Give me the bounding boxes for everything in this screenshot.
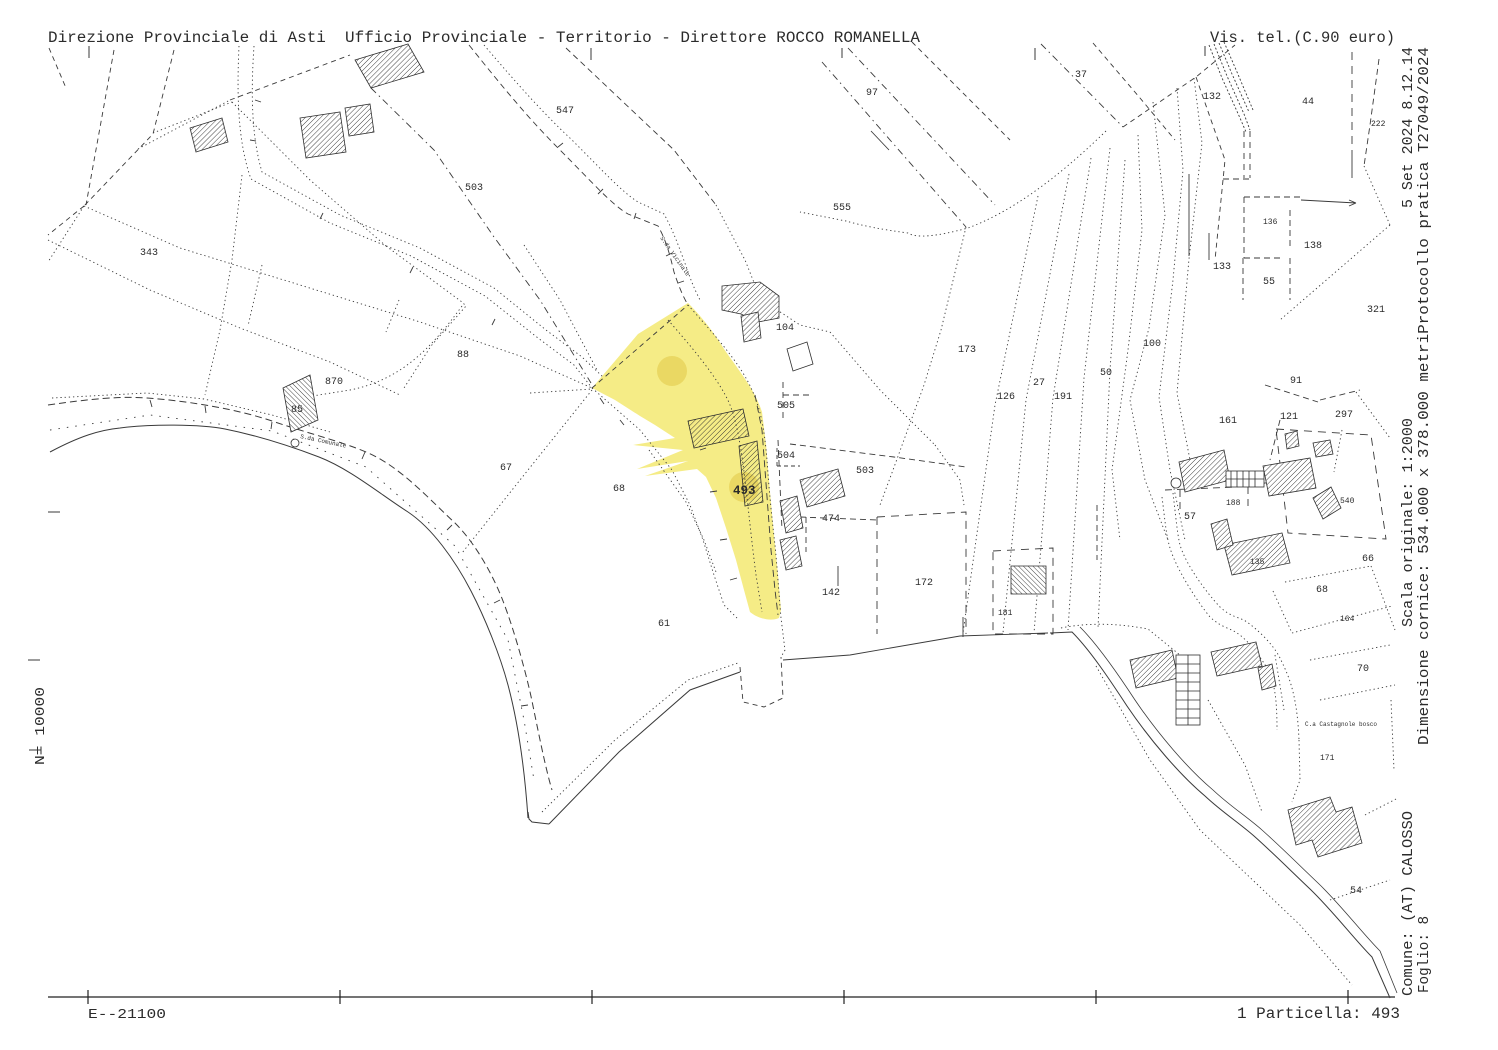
svg-text:91: 91 bbox=[1290, 376, 1302, 387]
svg-text:161: 161 bbox=[1219, 416, 1237, 427]
svg-text:171: 171 bbox=[1320, 754, 1335, 763]
svg-text:555: 555 bbox=[833, 203, 851, 214]
svg-text:C.a Castagnole bosco: C.a Castagnole bosco bbox=[1305, 721, 1377, 728]
svg-text:135: 135 bbox=[1250, 558, 1265, 567]
svg-text:133: 133 bbox=[1213, 262, 1231, 273]
svg-text:67: 67 bbox=[500, 463, 512, 474]
svg-text:Vis. tel.(C.90 euro): Vis. tel.(C.90 euro) bbox=[1210, 29, 1395, 47]
svg-text:173: 173 bbox=[958, 345, 976, 356]
svg-text:57: 57 bbox=[1184, 512, 1196, 523]
svg-text:505: 505 bbox=[777, 401, 795, 412]
svg-text:142: 142 bbox=[822, 588, 840, 599]
svg-text:540: 540 bbox=[1340, 497, 1355, 506]
svg-text:5 Set 2024 8.12.14: 5 Set 2024 8.12.14 bbox=[1401, 47, 1417, 208]
svg-text:97: 97 bbox=[866, 88, 878, 99]
svg-text:503: 503 bbox=[465, 183, 483, 194]
svg-text:191: 191 bbox=[1054, 392, 1072, 403]
svg-text:37: 37 bbox=[1075, 70, 1087, 81]
svg-text:188: 188 bbox=[1226, 499, 1241, 508]
svg-text:297: 297 bbox=[1335, 410, 1353, 421]
svg-text:547: 547 bbox=[556, 106, 574, 117]
svg-text:100: 100 bbox=[1143, 339, 1161, 350]
svg-text:Scala originale: 1:2000: Scala originale: 1:2000 bbox=[1401, 418, 1417, 627]
svg-text:Dimensione cornice: 534.000 x: Dimensione cornice: 534.000 x 378.000 me… bbox=[1417, 47, 1433, 745]
svg-text:70: 70 bbox=[1357, 664, 1369, 675]
svg-text:Foglio: 8: Foglio: 8 bbox=[1417, 916, 1433, 993]
svg-text:85: 85 bbox=[291, 405, 303, 416]
svg-text:474: 474 bbox=[822, 514, 840, 525]
svg-text:343: 343 bbox=[140, 248, 158, 259]
svg-text:321: 321 bbox=[1367, 305, 1385, 316]
svg-text:136: 136 bbox=[1263, 218, 1278, 227]
svg-text:Direzione Provinciale di Asti: Direzione Provinciale di Asti Ufficio Pr… bbox=[48, 29, 921, 47]
svg-text:88: 88 bbox=[457, 350, 469, 361]
svg-text:503: 503 bbox=[856, 466, 874, 477]
svg-text:44: 44 bbox=[1302, 97, 1314, 108]
svg-text:54: 54 bbox=[1350, 886, 1362, 897]
svg-text:870: 870 bbox=[325, 377, 343, 388]
svg-text:66: 66 bbox=[1362, 554, 1374, 565]
svg-text:27: 27 bbox=[1033, 378, 1045, 389]
svg-text:N= 10000: N= 10000 bbox=[33, 687, 49, 765]
svg-text:172: 172 bbox=[915, 578, 933, 589]
svg-text:504: 504 bbox=[777, 451, 795, 462]
svg-text:132: 132 bbox=[1203, 92, 1221, 103]
svg-text:181: 181 bbox=[998, 609, 1013, 618]
svg-text:138: 138 bbox=[1304, 241, 1322, 252]
svg-text:493: 493 bbox=[733, 484, 756, 498]
svg-text:50: 50 bbox=[1100, 368, 1112, 379]
svg-text:Comune: (AT) CALOSSO: Comune: (AT) CALOSSO bbox=[1401, 811, 1417, 996]
svg-text:222: 222 bbox=[1371, 120, 1386, 129]
svg-text:55: 55 bbox=[1263, 277, 1275, 288]
svg-text:104: 104 bbox=[776, 323, 794, 334]
svg-text:68: 68 bbox=[613, 484, 625, 495]
svg-text:E--21100: E--21100 bbox=[88, 1007, 166, 1023]
svg-text:61: 61 bbox=[658, 619, 670, 630]
svg-text:121: 121 bbox=[1280, 412, 1298, 423]
svg-text:126: 126 bbox=[997, 392, 1015, 403]
svg-text:164: 164 bbox=[1340, 615, 1355, 624]
svg-text:1 Particella: 493: 1 Particella: 493 bbox=[1237, 1005, 1400, 1023]
svg-text:68: 68 bbox=[1316, 585, 1328, 596]
